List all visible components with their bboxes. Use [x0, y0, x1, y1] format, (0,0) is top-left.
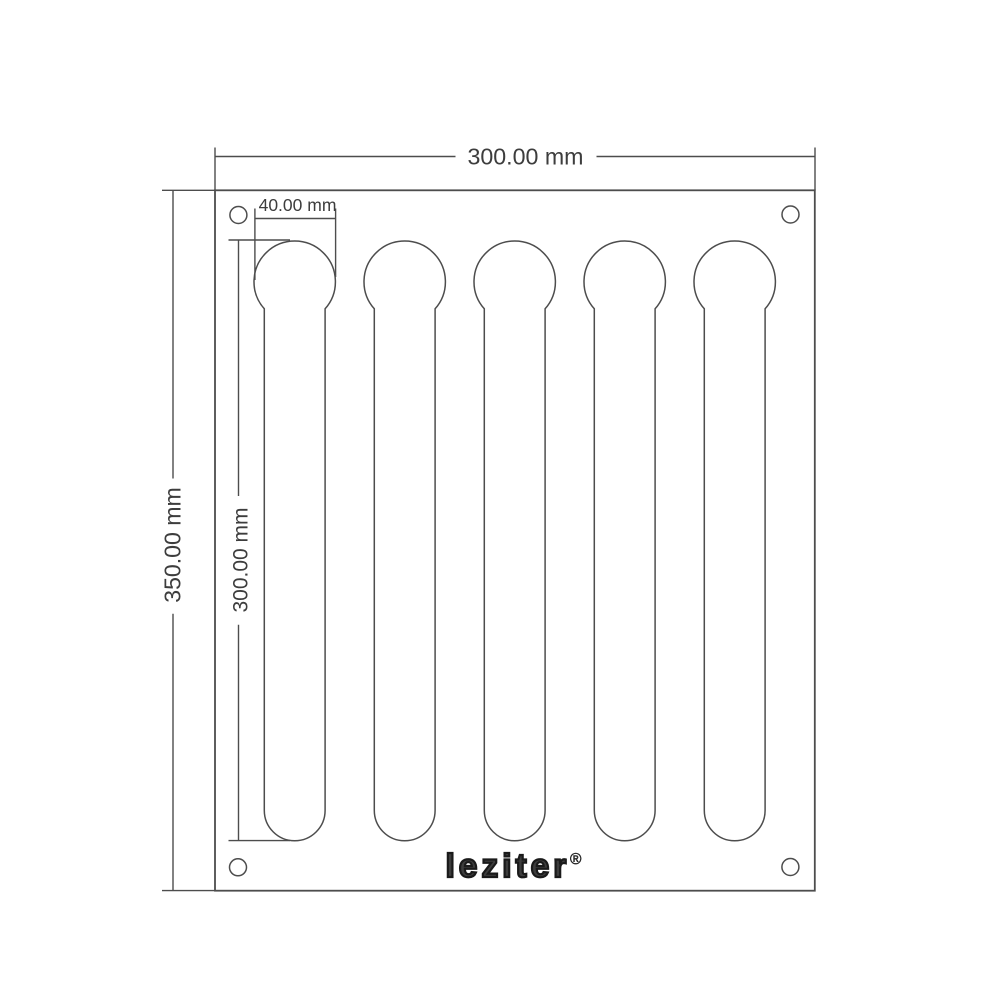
svg-text:40.00 mm: 40.00 mm: [259, 195, 337, 215]
svg-text:350.00 mm: 350.00 mm: [160, 487, 186, 603]
svg-text:®: ®: [570, 851, 582, 868]
svg-text:300.00 mm: 300.00 mm: [468, 144, 584, 170]
svg-text:300.00 mm: 300.00 mm: [230, 507, 253, 612]
svg-text:leziter: leziter: [446, 848, 571, 885]
